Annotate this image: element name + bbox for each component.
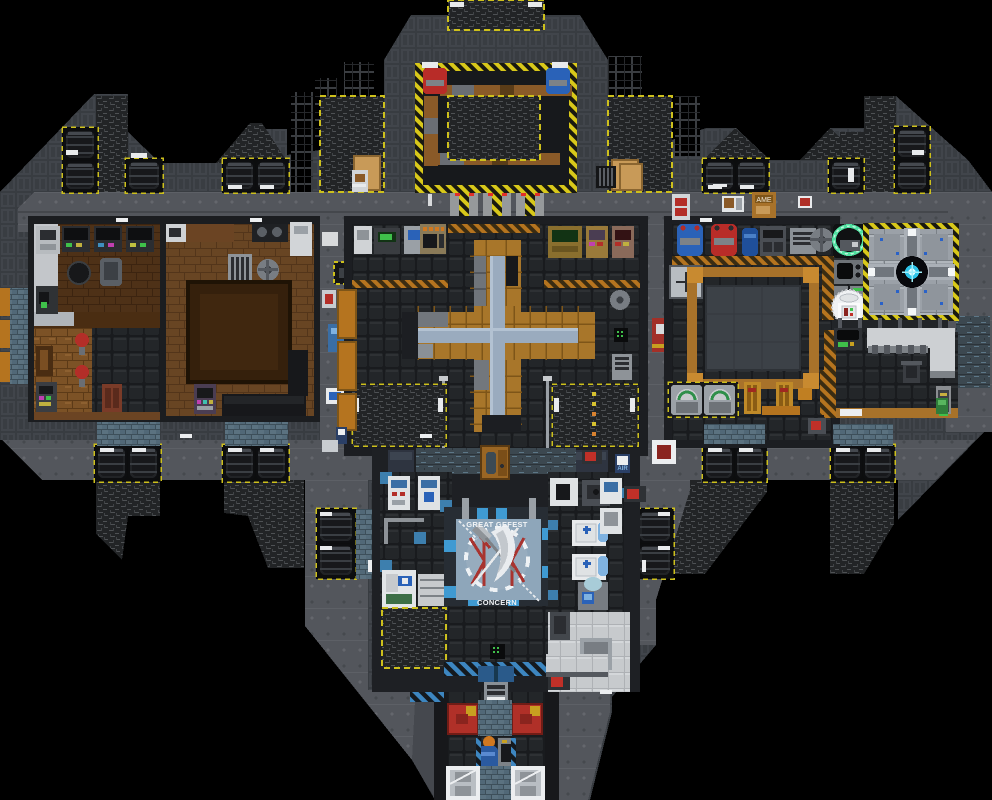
svg-text:GREAT GEFEST: GREAT GEFEST: [466, 520, 527, 529]
svg-text:AIR: AIR: [617, 466, 628, 472]
svg-text:CONCERN: CONCERN: [477, 598, 517, 607]
svg-text:AME: AME: [756, 197, 772, 204]
